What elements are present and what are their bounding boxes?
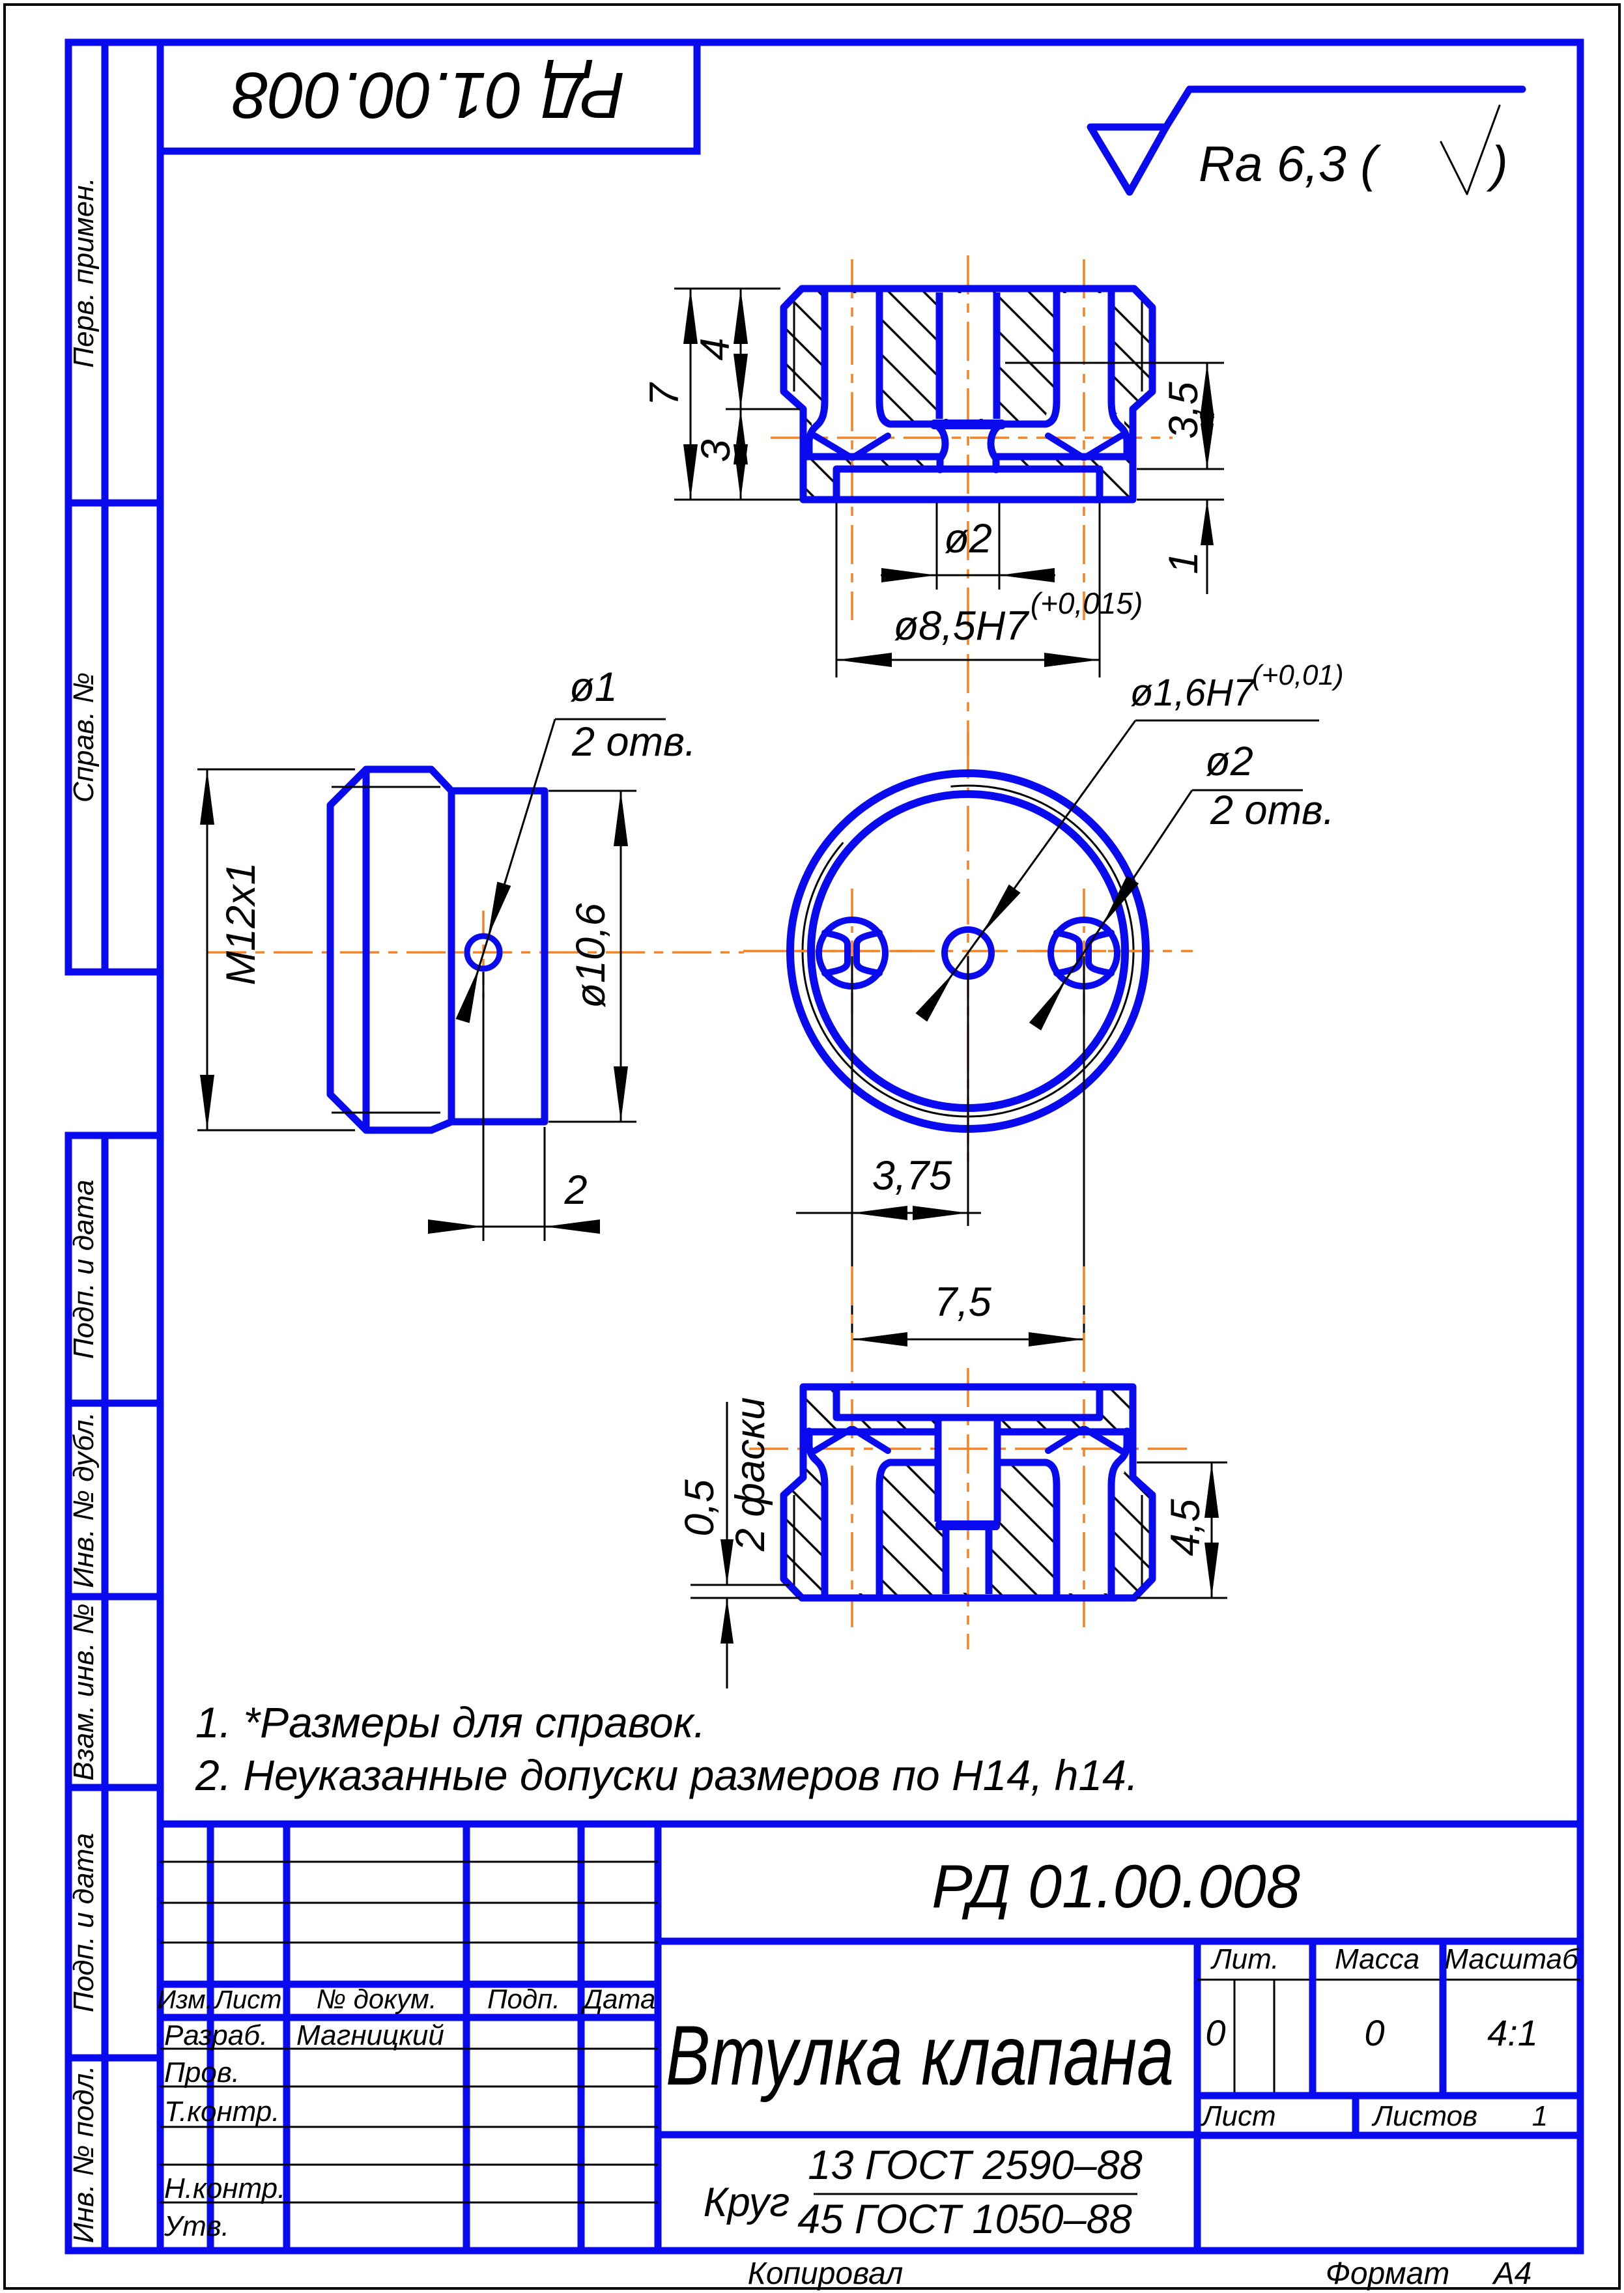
svg-text:Инв. № подл.: Инв. № подл. [68,2065,100,2243]
svg-text:Подп. и дата: Подп. и дата [68,1833,100,2012]
svg-text:2. Неуказанные допуски размеро: 2. Неуказанные допуски размеров по Н14, … [195,1751,1138,1799]
svg-text:Втулка клапана: Втулка клапана [666,2008,1174,2103]
svg-text:ø10,6: ø10,6 [568,902,614,1008]
svg-text:Дата: Дата [581,1984,656,2014]
svg-text:Взам. инв. №: Взам. инв. № [68,1603,100,1780]
svg-text:7: 7 [642,382,687,406]
svg-text:Круг: Круг [704,2180,790,2225]
svg-text:ø2: ø2 [1205,739,1253,784]
svg-text:4,5: 4,5 [1163,1498,1208,1556]
svg-text:Изм.: Изм. [157,1986,212,2014]
svg-text:Ra 6,3 (: Ra 6,3 ( [1199,136,1382,192]
svg-text:0,5: 0,5 [677,1479,722,1537]
svg-text:РД 01.00.008: РД 01.00.008 [932,1852,1300,1920]
svg-text:Н.контр.: Н.контр. [164,2172,285,2204]
svg-text:ø1,6Н7: ø1,6Н7 [1130,672,1256,714]
svg-text:2 отв.: 2 отв. [1210,788,1334,833]
svg-text:Лист: Лист [213,1986,282,2014]
svg-text:Подп. и дата: Подп. и дата [68,1180,100,1359]
svg-text:(+0,01): (+0,01) [1252,659,1344,691]
svg-text:(+0,015): (+0,015) [1031,586,1143,620]
svg-text:ø1: ø1 [569,664,618,710]
svg-text:3,5: 3,5 [1161,381,1206,439]
svg-text:ø2: ø2 [944,516,992,562]
svg-text:4:1: 4:1 [1487,2012,1538,2053]
svg-text:Листов: Листов [1371,2100,1477,2132]
svg-text:0: 0 [1205,2012,1225,2053]
svg-text:Магницкий: Магницкий [296,2019,444,2051]
svg-text:Пров.: Пров. [164,2057,240,2088]
svg-text:Т.контр.: Т.контр. [164,2096,280,2128]
svg-text:Справ. №: Справ. № [68,672,100,803]
svg-text:2: 2 [563,1167,587,1213]
svg-text:Перв. примен.: Перв. примен. [68,177,100,367]
svg-text:№ докум.: № докум. [316,1984,436,2014]
svg-text:3,75: 3,75 [872,1153,953,1199]
svg-text:2 фаски: 2 фаски [728,1397,773,1552]
svg-text:ø8,5H7: ø8,5H7 [894,603,1030,649]
svg-text:3: 3 [693,439,739,462]
svg-text:Лит.: Лит. [1210,1943,1279,1975]
svg-text:Масштаб: Масштаб [1444,1943,1580,1975]
svg-text:13 ГОСТ 2590–88: 13 ГОСТ 2590–88 [808,2143,1142,2188]
svg-text:РД 01.00.008: РД 01.00.008 [233,59,625,132]
svg-text:2 отв.: 2 отв. [571,719,696,765]
svg-text:Лист: Лист [1200,2100,1275,2132]
svg-text:45 ГОСТ 1050–88: 45 ГОСТ 1050–88 [797,2197,1132,2242]
svg-text:1: 1 [1532,2100,1548,2132]
svg-text:М12х1: М12х1 [218,862,264,985]
svg-text:Копировал: Копировал [748,2257,904,2291]
svg-text:А4: А4 [1492,2257,1532,2291]
svg-text:Утв.: Утв. [164,2210,229,2242]
svg-text:1. *Размеры для справок.: 1. *Размеры для справок. [195,1698,705,1746]
svg-text:4: 4 [692,337,738,360]
svg-text:Инв. № дубл.: Инв. № дубл. [68,1412,100,1588]
svg-text:Подп.: Подп. [487,1984,560,2014]
svg-text:1: 1 [1161,551,1206,574]
svg-text:Разраб.: Разраб. [164,2019,268,2051]
svg-text:Масса: Масса [1335,1943,1419,1975]
svg-text:Формат: Формат [1326,2257,1450,2291]
svg-text:7,5: 7,5 [934,1279,992,1325]
svg-text:0: 0 [1364,2012,1384,2053]
